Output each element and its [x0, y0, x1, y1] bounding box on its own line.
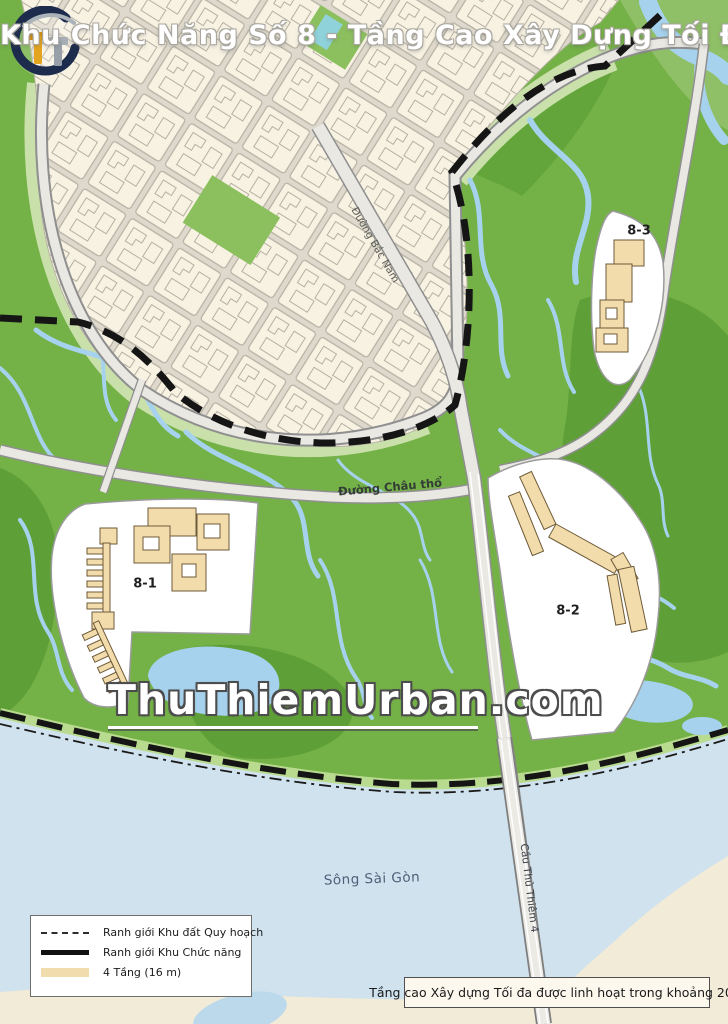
tan-fill-swatch — [41, 968, 89, 977]
zone-label-8-1: 8-1 — [133, 577, 157, 592]
legend-row-functional-boundary: Ranh giới Khu Chức năng — [41, 946, 243, 959]
legend-label: Ranh giới Khu Chức năng — [103, 946, 241, 959]
river-label-song-sai-gon: Sông Sài Gòn — [324, 869, 421, 888]
solid-line-swatch — [41, 950, 89, 955]
thu-thiem-map-page: Khu Chức Năng Số 8 - Tầng Cao Xây Dựng T… — [0, 0, 728, 1024]
page-title: Khu Chức Năng Số 8 - Tầng Cao Xây Dựng T… — [0, 20, 728, 51]
zone-label-8-2: 8-2 — [556, 604, 580, 619]
legend-box: Ranh giới Khu đất Quy hoạch Ranh giới Kh… — [30, 915, 252, 997]
legend-label: 4 Tầng (16 m) — [103, 966, 181, 979]
legend-row-planning-boundary: Ranh giới Khu đất Quy hoạch — [41, 926, 243, 939]
legend-label: Ranh giới Khu đất Quy hoạch — [103, 926, 263, 939]
dashed-line-swatch — [41, 932, 89, 934]
zone-label-8-3: 8-3 — [627, 224, 651, 239]
watermark-link[interactable]: ThuThiemUrban.com — [108, 676, 478, 729]
note-box: Tầng cao Xây dựng Tối đa được linh hoạt … — [404, 977, 710, 1008]
legend-row-4-floors: 4 Tầng (16 m) — [41, 966, 243, 979]
